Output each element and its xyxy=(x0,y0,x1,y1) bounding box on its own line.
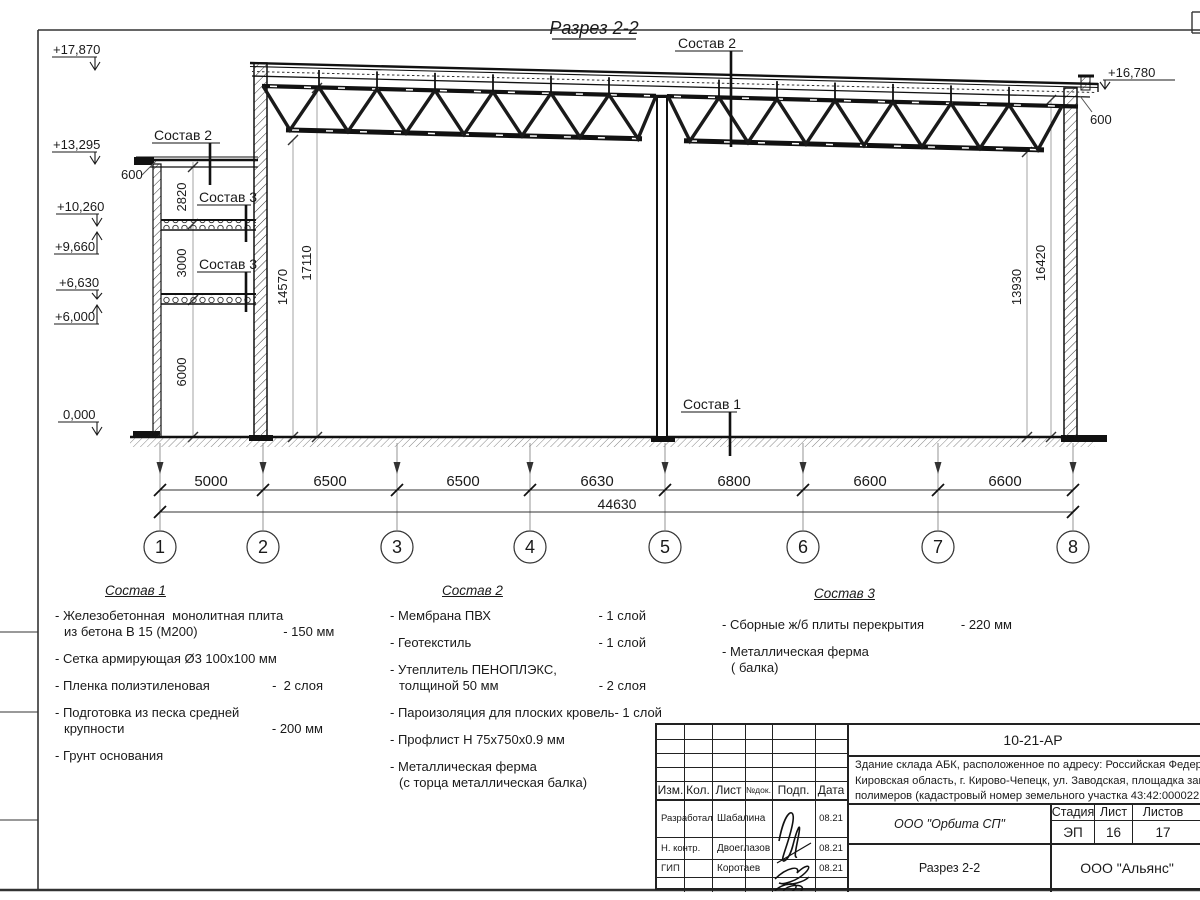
elevation-label: +10,260 xyxy=(57,199,104,214)
composition-3-title: Состав 3 xyxy=(814,586,875,602)
list-item: - Мембрана ПВХ - 1 слой xyxy=(390,608,646,624)
list-item: - Металлическая ферма (с торца металличе… xyxy=(390,759,646,791)
item-text: крупности xyxy=(55,721,239,737)
list-item: - Подготовка из песка средней крупности … xyxy=(55,705,323,737)
item-text: ( балка) xyxy=(722,660,869,676)
tb-stage-header: Стадия xyxy=(1052,804,1094,820)
tb-col-data: Дата xyxy=(815,781,847,799)
elevation-label: +6,000 xyxy=(55,309,95,324)
list-item: - Железобетонная монолитная плита из бет… xyxy=(55,608,323,640)
dim-600-left: 600 xyxy=(121,167,143,182)
annex-slab-lower xyxy=(161,294,256,304)
column-axis-8 xyxy=(1064,88,1077,437)
list-item: - Грунт основания xyxy=(55,748,323,764)
vdim-14570: 14570 xyxy=(275,269,290,305)
item-text: - Подготовка из песка средней xyxy=(55,705,239,721)
elevation-mark-right: +16,780 xyxy=(1100,65,1175,89)
dimension-chain: 5000 6500 6500 6630 6800 6600 6600 44630 xyxy=(154,443,1079,530)
composition-3-list: Состав 3 - Сборные ж/б плиты перекрытия … xyxy=(722,586,1012,687)
span-dim: 6600 xyxy=(853,473,886,490)
tb-description-line: полимеров (кадастровый номер земельного … xyxy=(855,789,1200,805)
tb-name-dvoeglazov: Двоеглазов xyxy=(713,839,772,857)
title-block: Изм. Кол. Лист №док. Подп. Дата Разработ… xyxy=(655,723,1200,890)
span-dim: 6630 xyxy=(580,473,613,490)
tb-col-podp: Подп. xyxy=(772,781,815,799)
vertical-dims: 2820 3000 6000 14570 17110 13930 16420 xyxy=(174,183,1048,387)
total-dim: 44630 xyxy=(598,496,637,512)
axis-bubble: 2 xyxy=(258,537,268,557)
list-item: - Пленка полиэтиленовая - 2 слоя xyxy=(55,678,323,694)
tb-description: Здание склада АБК, расположенное по адре… xyxy=(849,756,1200,805)
tb-list-header: Лист xyxy=(1095,804,1132,820)
label-sostav2-annex: Состав 2 xyxy=(154,127,212,143)
elevation-label: +17,870 xyxy=(53,42,100,57)
tb-col-list: Лист xyxy=(712,781,745,799)
vdim-6000: 6000 xyxy=(174,358,189,387)
tb-col-kol: Кол. xyxy=(684,781,712,799)
truss-2 xyxy=(667,80,1078,150)
list-item: - Металлическая ферма ( балка) xyxy=(722,644,1012,676)
span-dim: 6600 xyxy=(988,473,1021,490)
drawing-sheet: { "title": "Разрез 2-2", "marks_left": [… xyxy=(0,0,1200,900)
tb-date: 08.21 xyxy=(815,860,847,876)
tb-description-line: Кировская область, г. Кирово-Чепецк, ул.… xyxy=(855,774,1200,790)
item-value: - 2 слоя xyxy=(599,678,646,694)
item-value: - 1 слой xyxy=(598,608,646,624)
item-text: - Металлическая ферма xyxy=(390,759,587,775)
label-sostav3-lower: Состав 3 xyxy=(199,256,257,272)
elevation-label: +6,630 xyxy=(59,275,99,290)
axis-arrows xyxy=(157,462,1077,474)
tb-name-korotaev: Коротаев xyxy=(713,860,772,876)
composition-1-title: Состав 1 xyxy=(105,583,166,599)
span-dim: 6500 xyxy=(313,473,346,490)
axis-bubbles: 1 2 3 4 5 6 7 8 xyxy=(144,531,1089,563)
tb-role-razrabotal: Разработал xyxy=(657,805,712,831)
tb-role-nkontr: Н. контр. xyxy=(657,839,712,857)
composition-1-list: Состав 1 - Железобетонная монолитная пли… xyxy=(55,583,323,775)
elevation-label: +9,660 xyxy=(55,239,95,254)
axis-bubble: 8 xyxy=(1068,537,1078,557)
page-title: Разрез 2-2 xyxy=(549,18,638,38)
item-text: - Сетка армирующая Ø3 100х100 мм xyxy=(55,651,277,667)
span-dims: 5000 6500 6500 6630 6800 6600 6600 xyxy=(194,473,1021,490)
item-text: - Пароизоляция для плоских кровель xyxy=(390,705,614,721)
composition-2-list: Состав 2 - Мембрана ПВХ - 1 слой - Геоте… xyxy=(390,583,646,802)
item-text: - Пленка полиэтиленовая xyxy=(55,678,210,694)
annex-slab-upper xyxy=(161,220,256,230)
item-text: из бетона В 15 (М200) xyxy=(55,624,283,640)
item-value: - 1 слой xyxy=(598,635,646,651)
dim-600-right: 600 xyxy=(1090,112,1112,127)
list-item: - Сетка армирующая Ø3 100х100 мм xyxy=(55,651,323,667)
tb-listov-value: 17 xyxy=(1133,821,1193,843)
signature-strokes xyxy=(771,801,817,891)
tb-listov-header: Листов xyxy=(1133,804,1193,820)
drawing-title: Разрез 2-2 xyxy=(549,18,638,39)
list-item: - Геотекстиль - 1 слой xyxy=(390,635,646,651)
axis-bubble: 6 xyxy=(798,537,808,557)
axis-bubble: 4 xyxy=(525,537,535,557)
tb-org-bottom: ООО "Альянс" xyxy=(1052,845,1200,890)
tb-col-izm: Изм. xyxy=(657,781,684,799)
vdim-3000: 3000 xyxy=(174,249,189,278)
label-sostav1: Состав 1 xyxy=(683,396,741,412)
column-axis-5 xyxy=(652,96,672,437)
axis-bubble: 7 xyxy=(933,537,943,557)
vdim-2820: 2820 xyxy=(174,183,189,212)
item-value: - 220 мм xyxy=(961,617,1012,633)
elevation-label: +13,295 xyxy=(53,137,100,152)
vdim-16420: 16420 xyxy=(1033,245,1048,281)
axis-bubble: 3 xyxy=(392,537,402,557)
span-dim: 6800 xyxy=(717,473,750,490)
span-dim: 5000 xyxy=(194,473,227,490)
item-text: - Сборные ж/б плиты перекрытия xyxy=(722,617,924,633)
list-item: - Утеплитель ПЕНОПЛЭКС, толщиной 50 мм -… xyxy=(390,662,646,694)
tb-doc-number: 10-21-АР xyxy=(849,725,1200,755)
tb-org-middle: ООО "Орбита СП" xyxy=(849,805,1050,843)
item-text: - Мембрана ПВХ xyxy=(390,608,491,624)
tb-role-gip: ГИП xyxy=(657,860,712,876)
elevation-marks-left: +17,870 +13,295 +10,260 +9,660 +6,630 +6… xyxy=(52,42,104,435)
ground-floor xyxy=(130,431,1107,447)
list-item: - Пароизоляция для плоских кровель - 1 с… xyxy=(390,705,646,721)
tb-stage-value: ЭП xyxy=(1052,821,1094,843)
parapet-dim-right: 600 xyxy=(1080,96,1112,127)
vdim-17110: 17110 xyxy=(299,245,314,280)
span-dim: 6500 xyxy=(446,473,479,490)
elevation-label: +16,780 xyxy=(1108,65,1155,80)
label-sostav3-upper: Состав 3 xyxy=(199,189,257,205)
item-text: - Геотекстиль xyxy=(390,635,471,651)
item-text: - Профлист Н 75х750х0.9 мм xyxy=(390,732,565,748)
tb-description-line: Здание склада АБК, расположенное по адре… xyxy=(855,758,1200,774)
item-text: - Грунт основания xyxy=(55,748,163,764)
item-value: - 1 слой xyxy=(614,705,662,721)
annex-wall xyxy=(153,164,161,437)
column-axis-2 xyxy=(254,63,267,437)
composition-2-title: Состав 2 xyxy=(442,583,503,599)
tb-sheet-name: Разрез 2-2 xyxy=(849,845,1050,890)
tb-date: 08.21 xyxy=(815,805,847,831)
axis-bubble: 5 xyxy=(660,537,670,557)
tb-name-shabalina: Шабалина xyxy=(713,805,772,831)
item-text: толщиной 50 мм xyxy=(390,678,557,694)
item-text: (с торца металлическая балка) xyxy=(390,775,587,791)
vdim-13930: 13930 xyxy=(1009,269,1024,305)
list-item: - Сборные ж/б плиты перекрытия - 220 мм xyxy=(722,617,1012,633)
list-item: - Профлист Н 75х750х0.9 мм xyxy=(390,732,646,748)
tb-col-ndok: №док. xyxy=(745,781,772,799)
item-value: - 200 мм xyxy=(272,721,323,737)
tb-date: 08.21 xyxy=(815,839,847,857)
item-text: - Утеплитель ПЕНОПЛЭКС, xyxy=(390,662,557,678)
label-sostav2-top: Состав 2 xyxy=(678,35,736,51)
item-value: - 150 мм xyxy=(283,624,334,640)
item-value: - 2 слоя xyxy=(272,678,323,694)
elevation-label: 0,000 xyxy=(63,407,96,422)
axis-bubble: 1 xyxy=(155,537,165,557)
item-text: - Железобетонная монолитная плита xyxy=(55,608,283,624)
item-text: - Металлическая ферма xyxy=(722,644,869,660)
tb-list-value: 16 xyxy=(1095,821,1132,843)
